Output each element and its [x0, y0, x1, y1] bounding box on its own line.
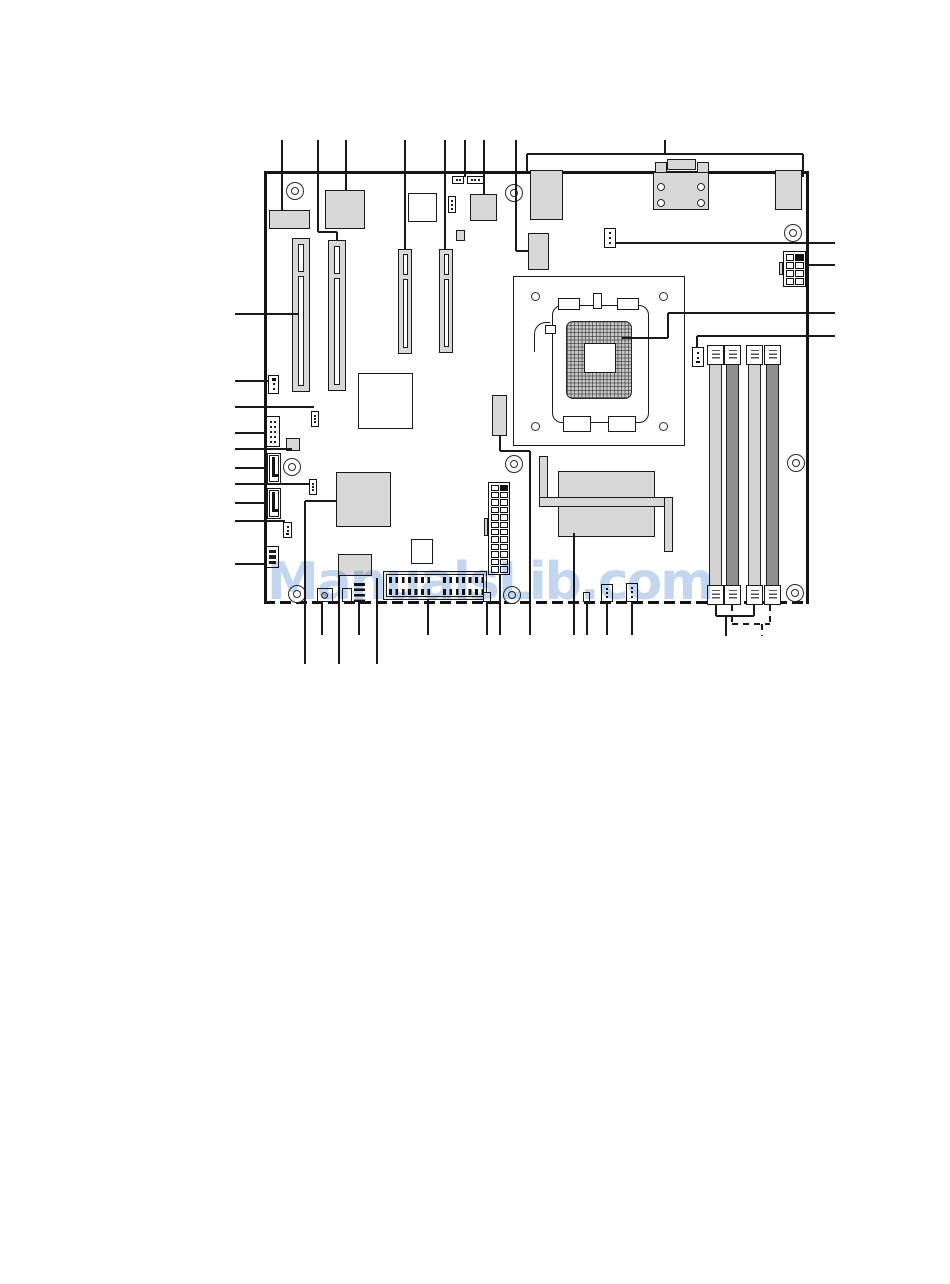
mounting-hole-inner — [510, 189, 518, 197]
pin-dot — [471, 179, 473, 181]
callout-line — [664, 140, 665, 154]
power-pin-cell — [491, 544, 499, 550]
pin-dot — [270, 441, 272, 443]
power-pin-cell — [491, 514, 499, 520]
mounting-hole-inner — [291, 187, 299, 195]
power-pin-cell — [491, 522, 499, 528]
southbridge-chip — [336, 472, 391, 527]
pin-dot — [478, 179, 480, 181]
fan-header-memory — [692, 347, 704, 367]
callout-line — [235, 313, 298, 314]
power-pin-cell — [786, 278, 795, 285]
pin-dot — [270, 431, 272, 433]
board-edge-right — [806, 171, 809, 604]
power-pin-cell — [786, 262, 795, 269]
pcie-slot-2-main — [444, 279, 449, 347]
pin-dot — [697, 357, 699, 359]
dimm-latch — [724, 585, 741, 605]
power-pin-cell — [795, 270, 804, 277]
mounting-hole-inner — [791, 589, 799, 597]
pcie-slot-2-key — [444, 254, 449, 275]
heatpipe-bottom — [539, 497, 673, 507]
callout-line — [483, 140, 484, 194]
jumper-block-b — [467, 176, 484, 184]
heatpipe-right — [664, 497, 673, 552]
power-pin-cell — [786, 254, 795, 261]
callout-line — [696, 336, 697, 347]
callout-line — [404, 140, 405, 249]
callout-line — [235, 467, 267, 468]
pin-dot — [287, 530, 289, 532]
power-pin-cell — [500, 529, 508, 535]
pin-dot — [272, 378, 276, 380]
socket-tab-bottom-right — [608, 416, 636, 432]
pin-dot — [696, 361, 701, 363]
pin-dot — [314, 421, 316, 423]
serial-port-screw — [657, 199, 665, 207]
socket-lever-tab — [545, 325, 556, 334]
serial-port-top — [667, 159, 696, 170]
lan-controller-chip — [325, 190, 365, 229]
pin-dot — [697, 352, 699, 354]
callout-line — [667, 313, 668, 338]
callout-line — [500, 450, 530, 451]
callout-line — [318, 231, 337, 232]
power-pin-cell — [500, 514, 508, 520]
dimm-latch — [764, 585, 781, 605]
pin-dot — [314, 418, 316, 420]
pin-dot — [312, 483, 314, 485]
callout-line — [527, 153, 803, 154]
callout-line — [802, 154, 803, 177]
callout-line — [235, 483, 309, 484]
socket-corner-hole — [531, 422, 540, 431]
power-pin-cell — [795, 254, 804, 261]
callout-line — [806, 264, 835, 265]
pci-slot-2-main — [334, 278, 340, 385]
callout-line — [345, 140, 346, 190]
pin-dot — [609, 232, 611, 234]
manualslib-watermark: ManualsLib.com — [267, 556, 712, 608]
pin-dot — [270, 436, 272, 438]
socket-cam-left — [558, 298, 580, 310]
jumper-block-a — [452, 176, 464, 184]
mounting-hole-inner — [288, 463, 296, 471]
dimm-latch — [764, 345, 781, 365]
dimm-slot-4 — [766, 345, 779, 605]
pin-dot — [451, 200, 453, 202]
fan-header-rear — [604, 228, 616, 248]
pin-dot — [274, 421, 276, 423]
dimm-latch — [724, 345, 741, 365]
callout-line — [526, 154, 527, 172]
callout-line — [697, 335, 835, 336]
chip-small-top — [456, 230, 465, 241]
callout-line — [499, 436, 500, 451]
callout-line — [464, 140, 465, 177]
power-pin-cell — [500, 507, 508, 513]
motherboard-diagram-page: ManualsLib.com — [0, 0, 950, 1284]
dimm-latch — [746, 585, 763, 605]
rear-io-port-left — [269, 210, 310, 229]
sata-1-foot — [272, 474, 278, 477]
power-pin-cell — [500, 522, 508, 528]
callout-line-dashed — [732, 623, 770, 624]
socket-cam-right — [617, 298, 639, 310]
callout-line-dashed — [731, 605, 732, 624]
connector-block-mid — [528, 233, 549, 270]
callout-line — [281, 140, 282, 210]
jumper-b — [309, 479, 317, 495]
callout-line — [516, 250, 528, 251]
callout-line — [235, 406, 314, 407]
callout-line — [515, 140, 516, 251]
serial-port-screw — [657, 183, 665, 191]
dimm-latch — [707, 345, 724, 365]
chip-outline-top — [408, 193, 437, 222]
pin-dot — [312, 486, 314, 488]
pci-slot-1-key — [298, 244, 304, 272]
vrm-bar — [492, 395, 507, 436]
power-pin-cell — [491, 536, 499, 542]
power-pin-cell — [491, 485, 499, 491]
callout-line — [235, 563, 266, 564]
pin-dot — [609, 242, 611, 244]
power-pin-cell — [500, 492, 508, 498]
pin-dot — [274, 431, 276, 433]
pin-dot — [274, 441, 276, 443]
callout-line — [305, 500, 336, 501]
clock-chip — [470, 194, 497, 221]
pin-dot — [273, 383, 275, 385]
serial-port-screw — [697, 183, 705, 191]
mounting-hole-inner — [792, 459, 800, 467]
power-pin-cell — [795, 262, 804, 269]
callout-line — [317, 140, 318, 232]
socket-corner-hole — [659, 292, 668, 301]
pin-dot — [474, 179, 476, 181]
pcie-slot-1-key — [403, 254, 408, 275]
serial-port-screw — [697, 199, 705, 207]
pin-dot — [286, 533, 288, 534]
power-pin-cell — [500, 499, 508, 505]
pin-dot — [270, 426, 272, 428]
pcie-slot-1-main — [403, 279, 408, 348]
jumper-a — [311, 411, 319, 427]
socket-pin-tab — [593, 293, 602, 309]
cpu-pad-center — [584, 343, 616, 373]
callout-line — [235, 520, 285, 521]
power-pin-cell — [500, 544, 508, 550]
pci-slot-1-main — [298, 276, 304, 386]
mounting-hole-inner — [789, 229, 797, 237]
pin-dot — [287, 526, 289, 528]
power-pin-cell — [491, 529, 499, 535]
atx-power-tab — [484, 518, 488, 536]
power-pin-cell — [786, 270, 795, 277]
dimm-slot-3 — [748, 345, 761, 605]
callout-line — [622, 337, 668, 338]
pin-dot — [273, 388, 275, 390]
jumper-3pin-top — [448, 196, 456, 213]
board-edge-left — [264, 171, 267, 604]
callout-line — [668, 312, 835, 313]
pin-dot — [451, 208, 453, 210]
pin-dot — [274, 436, 276, 438]
socket-corner-hole — [659, 422, 668, 431]
cpu-power-tab — [779, 262, 783, 275]
dimm-slot-2 — [726, 345, 739, 605]
callout-line — [235, 432, 266, 433]
power-pin-cell — [500, 536, 508, 542]
pin-dot — [456, 179, 458, 181]
pin-dot — [312, 489, 314, 491]
callout-line — [235, 380, 268, 381]
callout-line — [235, 448, 292, 449]
power-pin-cell — [491, 492, 499, 498]
cpu-power-8pin — [783, 251, 806, 287]
heatpipe-left — [539, 456, 548, 503]
power-pin-cell — [795, 278, 804, 285]
header-2x5-left — [266, 416, 280, 447]
mounting-hole-inner — [510, 460, 518, 468]
callout-line — [336, 232, 337, 240]
dimm-latch — [746, 345, 763, 365]
callout-line-dashed — [769, 605, 770, 624]
pin-dot — [459, 179, 461, 181]
callout-line — [616, 242, 835, 243]
sata-2-foot — [272, 509, 278, 512]
power-pin-cell — [491, 507, 499, 513]
pin-dot — [609, 237, 611, 239]
callout-line — [716, 615, 754, 616]
header-4pin-left — [268, 375, 279, 394]
pin-dot — [314, 415, 316, 417]
callout-line — [235, 502, 267, 503]
callout-line — [725, 616, 726, 636]
power-pin-cell — [491, 499, 499, 505]
header-3pin-left — [283, 522, 292, 538]
socket-tab-bottom-left — [563, 416, 591, 432]
power-pin-cell — [500, 485, 508, 491]
pci-slot-2-key — [334, 246, 340, 274]
rear-io-port-usb — [530, 170, 563, 220]
pin-dot — [270, 421, 272, 423]
northbridge-chip — [358, 373, 413, 429]
callout-line-dashed — [761, 624, 762, 636]
rear-io-port-right — [775, 170, 802, 210]
callout-line — [444, 140, 445, 249]
pin-dot — [451, 204, 453, 206]
pin-dot — [274, 426, 276, 428]
socket-corner-hole — [531, 292, 540, 301]
